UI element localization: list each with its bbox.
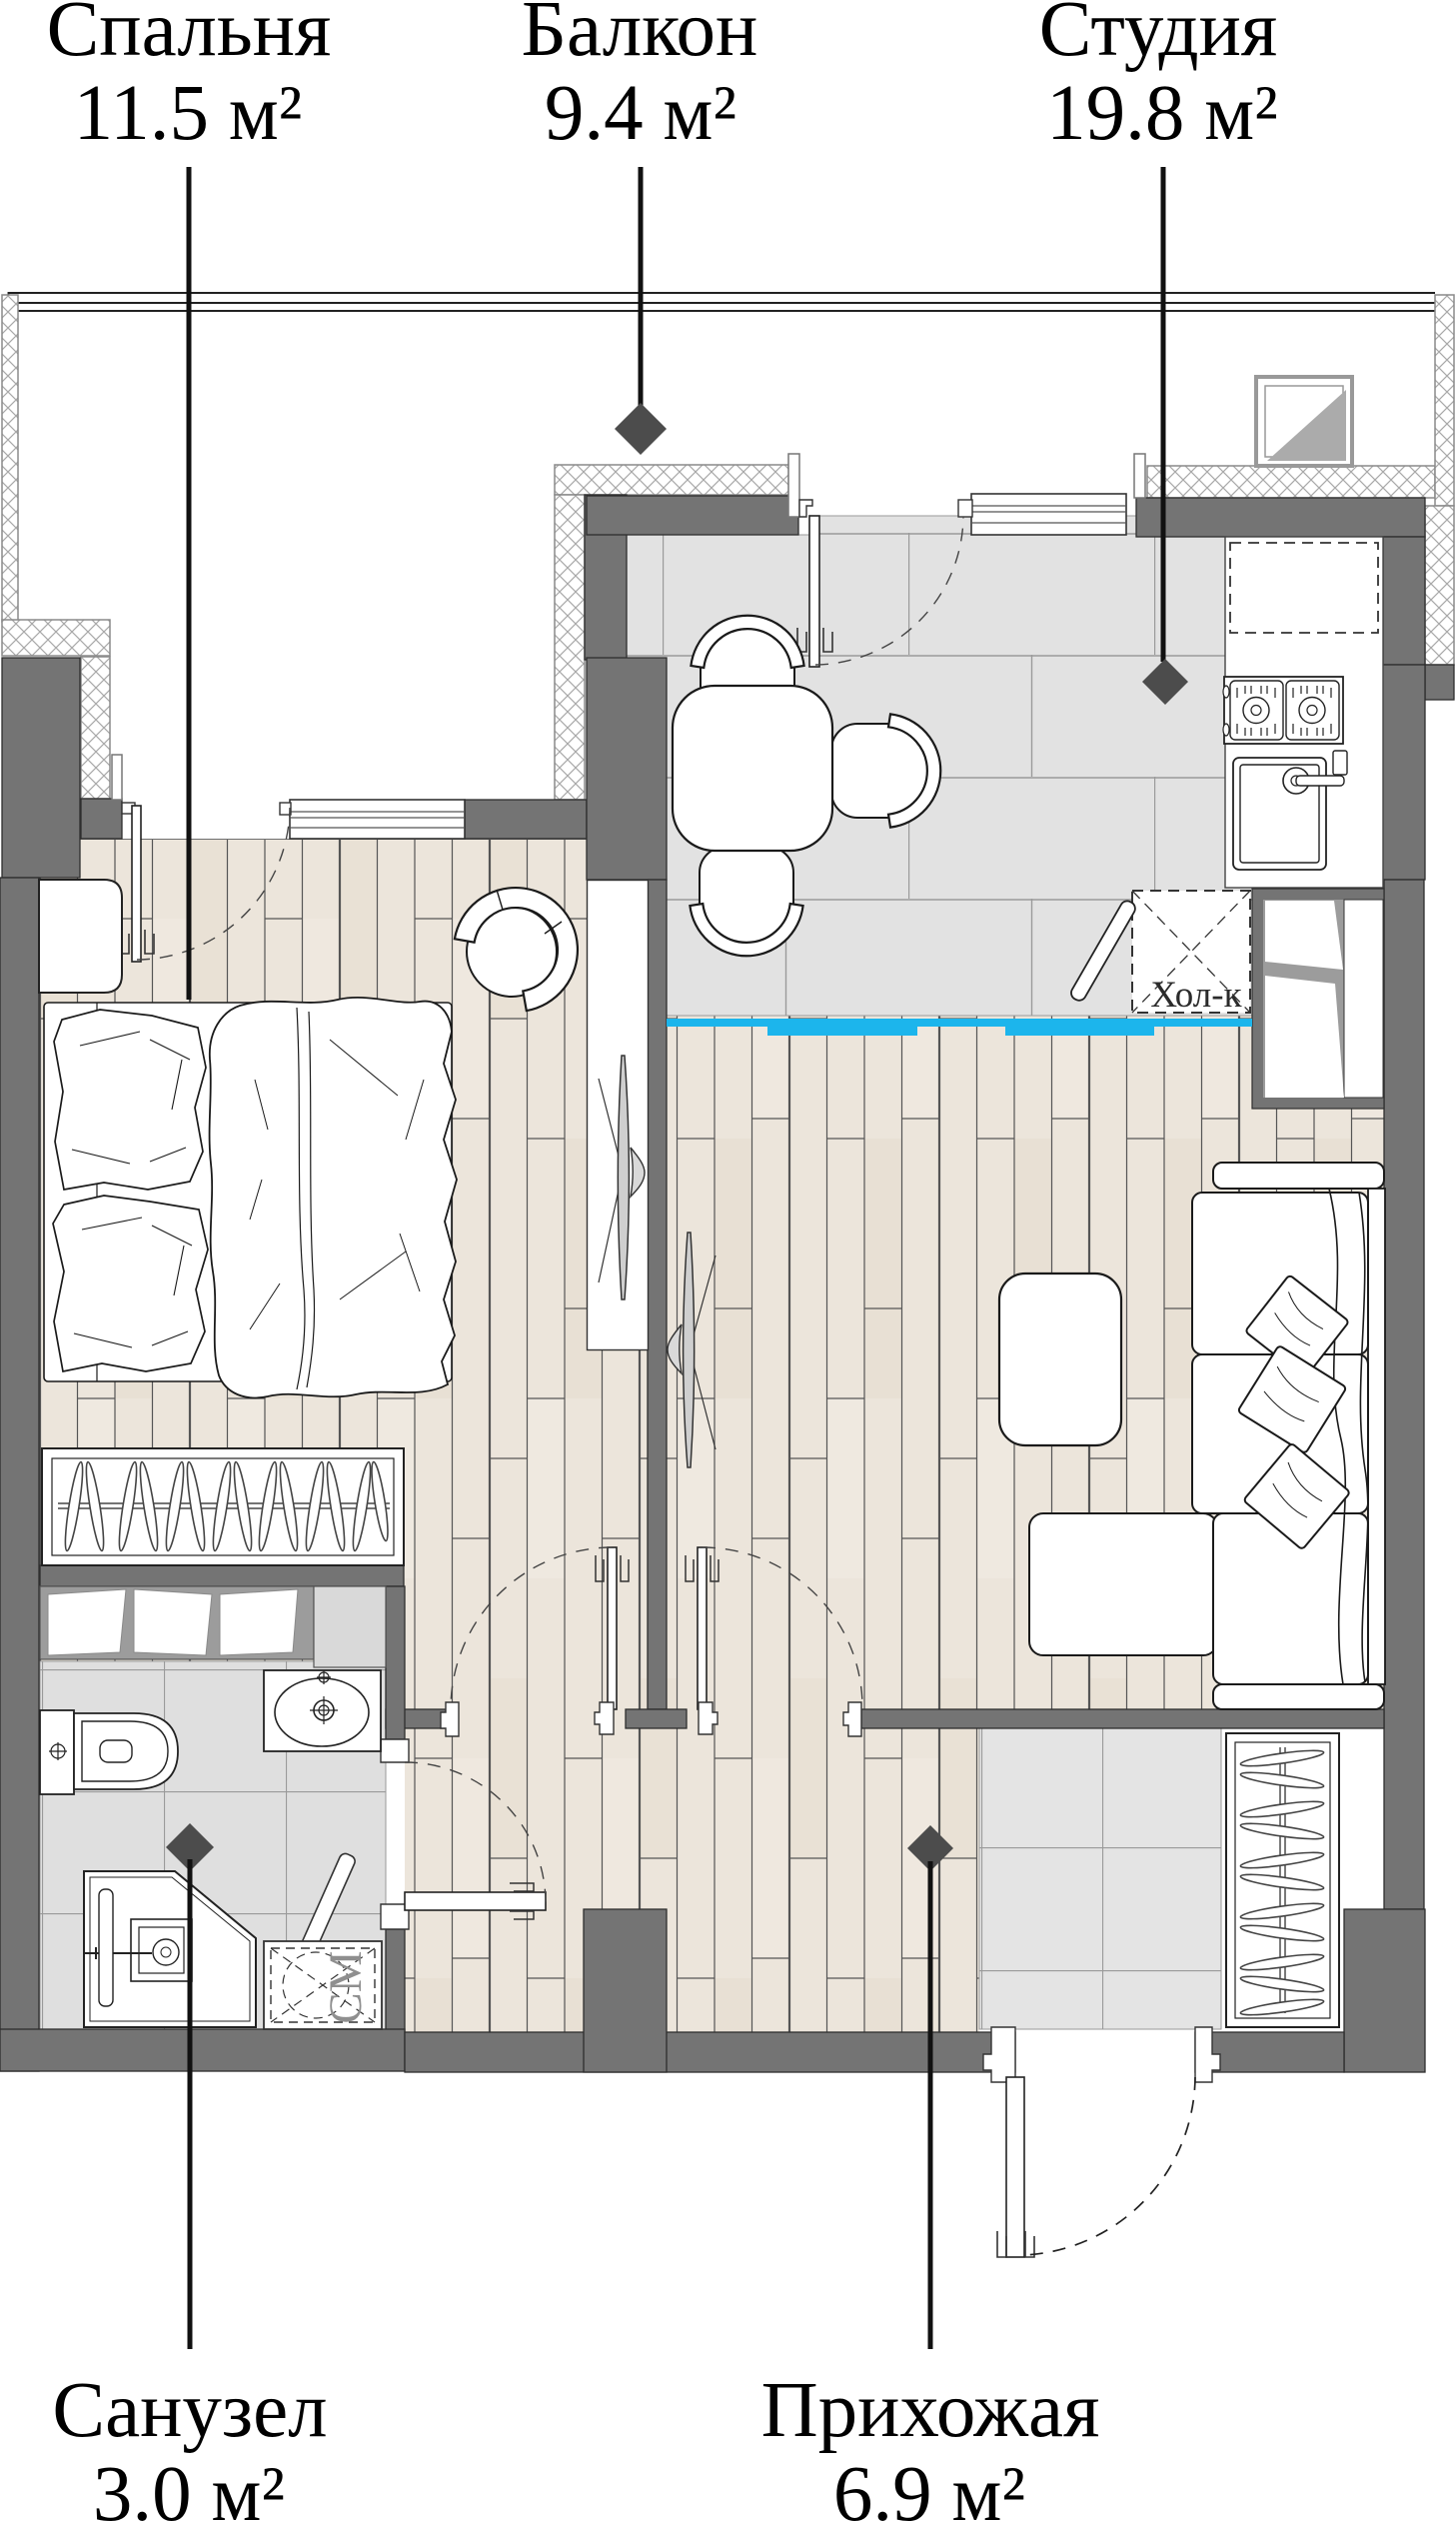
svg-text:Студия: Студия — [1039, 0, 1277, 73]
svg-text:9.4 м²: 9.4 м² — [545, 70, 736, 157]
svg-text:СМ: СМ — [320, 1950, 372, 2023]
svg-text:19.8 м²: 19.8 м² — [1046, 70, 1278, 157]
svg-text:Прихожая: Прихожая — [761, 2367, 1100, 2454]
svg-text:6.9 м²: 6.9 м² — [833, 2451, 1025, 2521]
svg-text:3.0 м²: 3.0 м² — [93, 2451, 285, 2521]
svg-text:Балкон: Балкон — [522, 0, 758, 73]
svg-text:Спальня: Спальня — [47, 0, 332, 73]
svg-text:Санузел: Санузел — [52, 2367, 327, 2454]
svg-text:Хол-к: Хол-к — [1150, 975, 1242, 1016]
svg-text:11.5 м²: 11.5 м² — [74, 70, 303, 157]
